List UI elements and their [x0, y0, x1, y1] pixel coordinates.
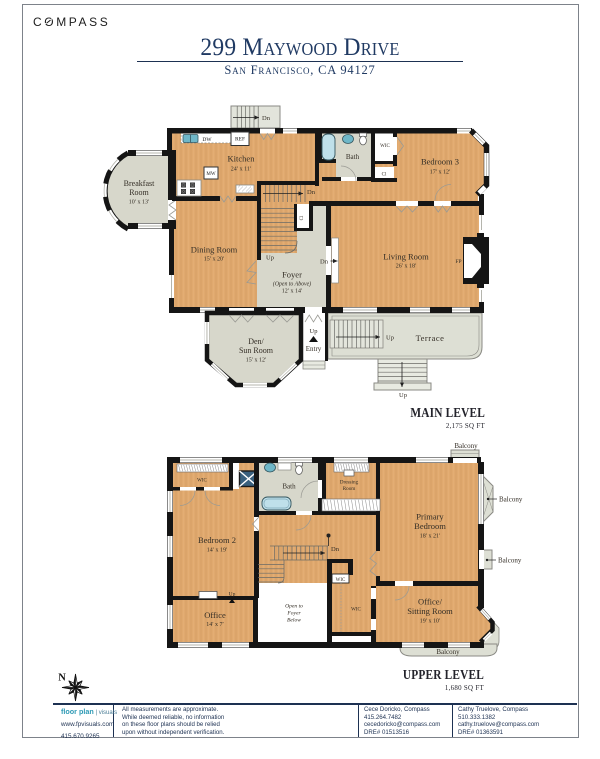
svg-text:Room: Room: [343, 486, 356, 492]
svg-text:Up: Up: [386, 335, 394, 342]
svg-text:Primary: Primary: [416, 512, 444, 522]
svg-text:Den/: Den/: [248, 337, 264, 346]
svg-text:WIC: WIC: [351, 608, 361, 613]
svg-text:Dressing: Dressing: [340, 480, 359, 486]
svg-text:Room: Room: [129, 188, 149, 197]
svg-text:Bedroom: Bedroom: [414, 521, 446, 531]
svg-text:Bedroom 2: Bedroom 2: [198, 535, 236, 545]
svg-text:Cl: Cl: [382, 173, 387, 178]
svg-text:Bath: Bath: [282, 483, 296, 491]
svg-text:Sun Room: Sun Room: [239, 346, 274, 355]
svg-text:FP: FP: [455, 259, 461, 265]
svg-text:24′ x 11′: 24′ x 11′: [231, 167, 252, 173]
svg-text:Office: Office: [204, 610, 226, 620]
svg-text:Up: Up: [266, 255, 274, 262]
svg-text:Foyer: Foyer: [282, 270, 302, 280]
svg-text:Dining Room: Dining Room: [191, 245, 238, 255]
svg-text:15′ x 12′: 15′ x 12′: [246, 358, 267, 364]
svg-text:Dn: Dn: [331, 546, 340, 553]
svg-text:REF: REF: [235, 137, 245, 143]
svg-text:Balcony: Balcony: [436, 648, 460, 656]
svg-text:Sitting Room: Sitting Room: [407, 606, 453, 616]
svg-text:Bedroom 3: Bedroom 3: [421, 157, 459, 167]
svg-text:Dn: Dn: [262, 115, 271, 122]
svg-text:WIC: WIC: [336, 578, 346, 583]
svg-text:26′ x 18′: 26′ x 18′: [396, 264, 417, 270]
svg-text:Foyer: Foyer: [286, 611, 301, 617]
svg-text:Cl: Cl: [300, 215, 305, 220]
svg-text:12′ x 14′: 12′ x 14′: [282, 289, 303, 295]
svg-text:(Open to Above): (Open to Above): [273, 281, 311, 288]
svg-text:Balcony: Balcony: [499, 496, 523, 504]
svg-text:WIC: WIC: [197, 479, 207, 484]
svg-text:MW: MW: [206, 172, 215, 177]
svg-text:WIC: WIC: [380, 144, 390, 149]
svg-text:17′ x 12′: 17′ x 12′: [430, 170, 451, 176]
svg-text:Below: Below: [287, 618, 301, 624]
svg-text:Balcony: Balcony: [498, 557, 522, 565]
svg-text:Terrace: Terrace: [416, 333, 445, 343]
svg-text:10′ x 13′: 10′ x 13′: [129, 200, 150, 206]
svg-text:14′ x 19′: 14′ x 19′: [207, 548, 228, 554]
svg-text:Kitchen: Kitchen: [228, 154, 256, 164]
svg-text:Up: Up: [229, 592, 236, 598]
svg-text:18′ x 21′: 18′ x 21′: [420, 534, 441, 540]
svg-text:14′ x 7′: 14′ x 7′: [206, 622, 224, 628]
svg-text:N: N: [58, 673, 66, 684]
svg-text:Entry: Entry: [306, 345, 322, 353]
svg-text:Up: Up: [399, 392, 407, 399]
svg-text:Bath: Bath: [346, 153, 360, 161]
svg-text:DW: DW: [202, 137, 212, 143]
svg-text:Dn: Dn: [307, 189, 316, 196]
svg-text:Living Room: Living Room: [383, 252, 429, 262]
svg-text:Office/: Office/: [418, 597, 443, 607]
svg-text:15′ x 20′: 15′ x 20′: [204, 257, 225, 263]
svg-text:Breakfast: Breakfast: [124, 179, 155, 188]
svg-text:Open to: Open to: [285, 604, 303, 610]
svg-text:19′ x 10′: 19′ x 10′: [420, 619, 441, 625]
svg-text:Up: Up: [310, 328, 318, 335]
svg-text:Dn: Dn: [320, 259, 329, 266]
svg-text:Balcony: Balcony: [454, 442, 478, 450]
